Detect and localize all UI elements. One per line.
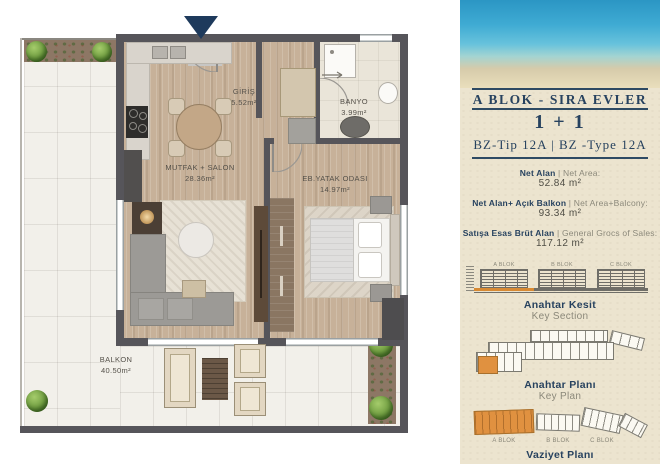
section-block-a-label: A BLOK (480, 262, 528, 268)
room-label-yatak-odasi: EB.YATAK ODASI 14.97m² (288, 173, 382, 196)
bush-icon (369, 396, 393, 420)
net-balcony-label-tr: Net Alan+ Açık Balkon (472, 198, 566, 208)
gross-area-value: 117.12 m² (460, 238, 660, 249)
coffee-table (178, 222, 214, 258)
block-title: A BLOK - SIRA EVLER (460, 92, 660, 108)
divider (472, 88, 648, 90)
pipe-separator: | (569, 198, 571, 208)
pillow (358, 252, 382, 278)
key-plan-top-row (530, 330, 608, 342)
section-block-b (538, 269, 586, 288)
section-block-a (480, 269, 528, 288)
dining-table (176, 104, 222, 150)
key-plan-caption-en: Key Plan (460, 391, 660, 402)
key-plan-right-wing (609, 330, 645, 351)
room-name: EB.YATAK ODASI (288, 173, 382, 184)
balcony-table (202, 358, 228, 400)
site-block-b (536, 413, 581, 432)
sink-basin (170, 46, 186, 59)
toilet (340, 116, 370, 138)
armchair-cushion (240, 387, 260, 411)
room-area: 3.99m² (328, 107, 380, 118)
room-label-mutfak-salon: MUTFAK + SALON 28.36m² (146, 162, 254, 185)
divider (472, 157, 648, 159)
net-balcony-label: Net Alan+ Açık Balkon | Net Area+Balcony… (460, 198, 660, 208)
tv-screen (260, 230, 262, 298)
room-name: BANYO (328, 96, 380, 107)
net-area-label-en: Net Area: (563, 168, 600, 178)
info-panel: A BLOK - SIRA EVLER 1 + 1 BZ-Tip 12A | B… (460, 0, 660, 464)
site-block-a (474, 409, 535, 435)
armchair-cushion (240, 349, 260, 373)
section-baseline (534, 288, 648, 291)
bedroom-wardrobe (270, 198, 294, 332)
bedroom-balcony-slider (286, 338, 378, 346)
unit-type: 1 + 1 (460, 111, 660, 134)
entrance-arrow-icon (184, 16, 218, 39)
pipe-separator: | (557, 228, 559, 238)
site-block-b-label: B BLOK (534, 438, 582, 444)
site-block-a-label: A BLOK (474, 438, 534, 444)
wardrobe-handle-icon (280, 226, 283, 246)
sofa-cushion (167, 298, 193, 320)
room-label-banyo: BANYO 3.99m² (328, 96, 380, 119)
bush-icon (26, 390, 48, 412)
bush-icon (26, 41, 47, 62)
site-block-c-label: C BLOK (580, 438, 624, 444)
floor-lamp-icon (140, 210, 154, 224)
section-block-b-label: B BLOK (538, 262, 586, 268)
shower-drain-icon (330, 50, 334, 54)
shaft (382, 298, 404, 340)
washbasin (378, 82, 398, 104)
beach-photo (460, 0, 660, 88)
section-floor-scale (466, 266, 474, 292)
section-block-c-label: C BLOK (597, 262, 645, 268)
fridge (124, 150, 142, 202)
pipe-separator: | (558, 168, 560, 178)
nightstand (370, 196, 392, 214)
lounger-cushion (170, 354, 190, 402)
sink-basin (152, 46, 168, 59)
terrace-left-edge (20, 38, 22, 430)
room-label-giris: GİRİŞ 5.52m² (218, 86, 270, 109)
bathroom-window (360, 34, 392, 42)
gross-area-label-tr: Satışa Esas Brüt Alan (463, 228, 555, 238)
burner-icon (139, 112, 147, 120)
key-plan-caption-tr: Anahtar Planı (460, 379, 660, 391)
site-block-tail (618, 413, 648, 438)
room-name: BALKON (86, 354, 146, 365)
terrace-slider-window (116, 200, 124, 310)
net-balcony-value: 93.34 m² (460, 208, 660, 219)
net-area-label-tr: Net Alan (520, 168, 556, 178)
net-area-value: 52.84 m² (460, 178, 660, 189)
section-block-c (597, 269, 645, 288)
sofa-cushion (138, 298, 164, 320)
bedroom-window (400, 205, 408, 295)
key-section-caption-tr: Anahtar Kesit (460, 299, 660, 311)
bed-duvet (310, 218, 354, 282)
key-plan-highlight-unit (478, 356, 498, 374)
room-area: 28.36m² (146, 173, 254, 184)
site-block-c (580, 407, 623, 434)
dining-chair (215, 140, 232, 157)
wall-balcony-right (400, 346, 408, 433)
ottoman (182, 280, 206, 298)
gross-area-label-en: General Grocs of Sales: (562, 228, 657, 238)
wall-balcony-bottom (20, 426, 408, 433)
hall-bench (288, 118, 316, 144)
room-name: MUTFAK + SALON (146, 162, 254, 173)
key-section-caption-en: Key Section (460, 311, 660, 322)
site-plan-diagram: A BLOK B BLOK C BLOK (460, 406, 660, 452)
room-name: GİRİŞ (218, 86, 270, 97)
type-code: BZ-Tip 12A | BZ -Type 12A (460, 137, 660, 153)
brochure-page: GİRİŞ 5.52m² BANYO 3.99m² MUTFAK + SALON… (0, 0, 660, 464)
hall-wardrobe (280, 68, 316, 117)
wall-bathroom-bottom (314, 138, 408, 144)
net-area-label: Net Alan | Net Area: (460, 168, 660, 178)
bedroom-door-arc (274, 144, 302, 172)
section-groundline (474, 292, 648, 293)
room-area: 14.97m² (288, 184, 382, 195)
bed-headboard (390, 214, 400, 286)
room-label-balkon: BALKON 40.50m² (86, 354, 146, 377)
bush-icon (92, 42, 112, 62)
gross-area-label: Satışa Esas Brüt Alan | General Grocs of… (460, 228, 660, 238)
pillow (358, 222, 382, 248)
wardrobe-handle-icon (280, 276, 283, 296)
burner-icon (138, 124, 147, 133)
burner-icon (129, 109, 138, 118)
site-plan-caption-tr: Vaziyet Planı (460, 449, 660, 461)
key-plan-diagram (460, 326, 660, 378)
key-section-diagram: A BLOK B BLOK C BLOK (460, 258, 660, 298)
divider (472, 108, 648, 110)
burner-icon (129, 122, 137, 130)
room-area: 5.52m² (218, 97, 270, 108)
net-balcony-label-en: Net Area+Balcony: (574, 198, 648, 208)
room-area: 40.50m² (86, 365, 146, 376)
